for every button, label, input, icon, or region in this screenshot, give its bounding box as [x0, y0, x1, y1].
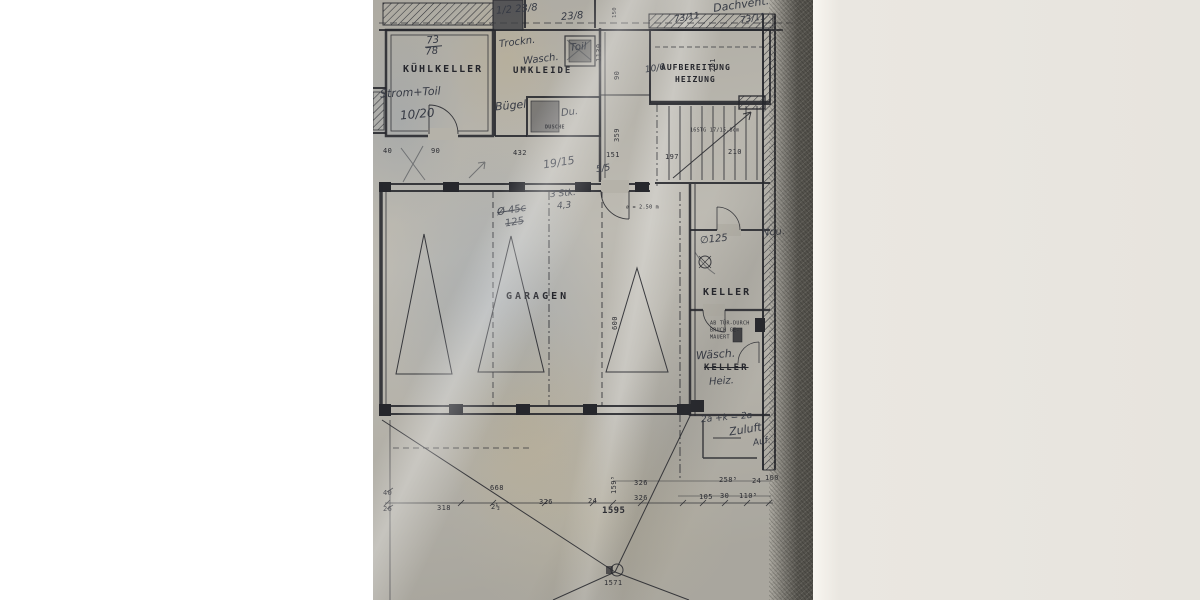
- dim-110: 110⁵: [739, 492, 757, 500]
- dim-90-vert: 90: [613, 71, 621, 80]
- dim-326-c: 326: [634, 494, 648, 502]
- dim-30: 30: [720, 492, 729, 500]
- dim-668: 668: [490, 484, 504, 492]
- room-label-dusche: DUSCHE: [545, 124, 565, 130]
- room-label-aufbereitung: AUFBEREITUNG: [661, 63, 731, 72]
- dim-1130: 1130: [595, 44, 603, 62]
- hand-frac5: 73 78: [424, 35, 443, 57]
- room-label-kuehlkeller: KÜHLKELLER: [403, 64, 483, 75]
- dim-159: 159⁵: [610, 476, 618, 494]
- room-label-garagen: GARAGEN: [506, 291, 569, 302]
- hand-frac5-bottom: 78: [425, 46, 443, 57]
- dim-359: 359: [613, 128, 621, 142]
- dim-210: 210: [728, 148, 742, 156]
- dim-26: 26: [383, 505, 392, 513]
- dim-151: 151: [606, 151, 620, 159]
- dim-90: 90: [431, 147, 440, 155]
- room-label-umkleide: UMKLEIDE: [513, 66, 572, 76]
- dim-105: 105: [699, 493, 713, 501]
- dim-150: 150: [611, 7, 617, 18]
- dim-432: 432: [513, 149, 527, 157]
- keller-note-line1: AB TÜR-DURCH: [710, 320, 750, 326]
- dim-201: 201: [709, 58, 717, 72]
- dim-40-wall: 40: [383, 147, 392, 155]
- dim-258: 258⁵: [719, 476, 737, 484]
- background-wall: [813, 0, 1200, 600]
- hand-waesch: Wäsch.: [696, 347, 736, 363]
- dim-326-b: 326: [634, 479, 648, 487]
- dim-1571: 1571: [604, 579, 622, 587]
- stair-count-note: 16STG 17/15,8cm: [690, 127, 739, 133]
- dim-197: 197: [665, 153, 679, 161]
- diameter-note: ⌀ = 2.50 m: [626, 204, 659, 210]
- hand-frac2: 23/8: [561, 10, 584, 23]
- dim-318: 318: [437, 504, 451, 512]
- hand-buegel: Bügel: [494, 98, 526, 114]
- keller-note-line2: BRUCH GE-: [710, 327, 740, 333]
- hand-10-20: 10/20: [399, 106, 435, 123]
- photo-of-floorplan: { "colors": { "paper": "#b6b3aa", "ink":…: [0, 0, 1200, 600]
- hand-4-3: 4,3: [557, 200, 572, 211]
- room-label-keller-upper: KELLER: [703, 287, 751, 298]
- photocopy-toner-band: [769, 0, 813, 600]
- room-label-heizung: HEIZUNG: [675, 75, 716, 84]
- dim-600: 600: [611, 316, 619, 330]
- dim-24-b: 24: [752, 477, 761, 485]
- hand-toil: Toil: [570, 41, 587, 53]
- keller-note-line3: MAUERT: [710, 334, 730, 340]
- hand-du: Du.: [560, 106, 578, 119]
- dim-326-a: 326: [539, 498, 553, 506]
- room-label-keller-lower-struck: KELLER: [704, 363, 749, 373]
- dim-1595: 1595: [602, 506, 625, 516]
- hand-heiz: Heiz.: [709, 375, 735, 388]
- dim-2half: 2½: [491, 503, 500, 511]
- dim-40: 40: [383, 489, 392, 497]
- dim-24-a: 24: [588, 497, 597, 505]
- floorplan-photo: KÜHLKELLER UMKLEIDE AUFBEREITUNG HEIZUNG…: [373, 0, 813, 600]
